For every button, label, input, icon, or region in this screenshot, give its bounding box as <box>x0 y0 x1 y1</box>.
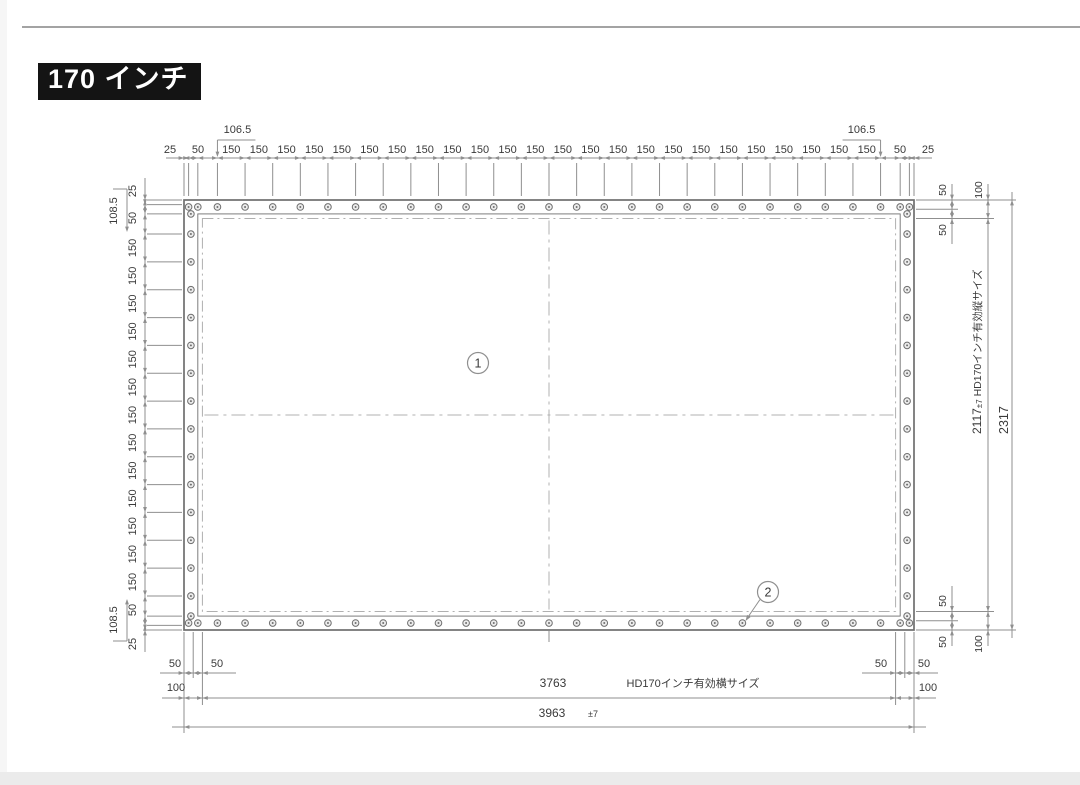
svg-text:100: 100 <box>919 682 937 694</box>
bottom-dimensions: 505050501001003763HD170インチ有効横サイズ3963±7 <box>160 632 938 733</box>
svg-text:150: 150 <box>554 144 572 156</box>
svg-text:150: 150 <box>609 144 627 156</box>
svg-text:150: 150 <box>802 144 820 156</box>
svg-text:25: 25 <box>127 638 139 650</box>
svg-text:150: 150 <box>127 545 139 563</box>
svg-text:150: 150 <box>388 144 406 156</box>
svg-text:150: 150 <box>127 434 139 452</box>
svg-text:150: 150 <box>719 144 737 156</box>
svg-text:150: 150 <box>775 144 793 156</box>
svg-text:150: 150 <box>127 322 139 340</box>
svg-text:50: 50 <box>937 595 949 607</box>
svg-text:150: 150 <box>415 144 433 156</box>
svg-text:3963: 3963 <box>539 706 566 720</box>
svg-text:150: 150 <box>858 144 876 156</box>
svg-text:2117±7 HD170インチ有効縦サイズ: 2117±7 HD170インチ有効縦サイズ <box>970 270 984 434</box>
svg-text:150: 150 <box>360 144 378 156</box>
svg-text:108.5: 108.5 <box>108 197 120 225</box>
svg-text:50: 50 <box>127 604 139 616</box>
svg-text:150: 150 <box>127 294 139 312</box>
svg-text:50: 50 <box>192 144 204 156</box>
svg-text:150: 150 <box>692 144 710 156</box>
svg-text:150: 150 <box>333 144 351 156</box>
svg-text:150: 150 <box>305 144 323 156</box>
svg-text:25: 25 <box>922 144 934 156</box>
svg-text:50: 50 <box>169 658 181 670</box>
svg-text:106.5: 106.5 <box>848 124 876 136</box>
top-dimension-chain: 2550150150150150150150150150150150150150… <box>164 124 934 196</box>
svg-text:2: 2 <box>765 586 772 600</box>
svg-text:150: 150 <box>127 461 139 479</box>
svg-text:150: 150 <box>664 144 682 156</box>
svg-text:106.5: 106.5 <box>224 124 252 136</box>
svg-text:100: 100 <box>167 682 185 694</box>
svg-text:150: 150 <box>747 144 765 156</box>
svg-text:108.5: 108.5 <box>108 606 120 634</box>
svg-text:150: 150 <box>830 144 848 156</box>
svg-text:50: 50 <box>211 658 223 670</box>
svg-text:50: 50 <box>127 212 139 224</box>
svg-text:100: 100 <box>973 181 985 199</box>
svg-text:150: 150 <box>471 144 489 156</box>
svg-text:HD170インチ有効横サイズ: HD170インチ有効横サイズ <box>627 676 760 690</box>
svg-text:25: 25 <box>127 185 139 197</box>
svg-text:150: 150 <box>250 144 268 156</box>
svg-text:50: 50 <box>937 636 949 648</box>
svg-text:150: 150 <box>581 144 599 156</box>
svg-text:150: 150 <box>222 144 240 156</box>
svg-text:150: 150 <box>127 239 139 257</box>
svg-text:50: 50 <box>937 184 949 196</box>
svg-text:100: 100 <box>973 635 985 653</box>
bottom-band <box>0 772 1080 785</box>
svg-text:150: 150 <box>637 144 655 156</box>
svg-text:150: 150 <box>277 144 295 156</box>
svg-text:150: 150 <box>127 489 139 507</box>
svg-text:25: 25 <box>164 144 176 156</box>
svg-text:50: 50 <box>875 658 887 670</box>
svg-text:150: 150 <box>127 378 139 396</box>
svg-text:150: 150 <box>127 517 139 535</box>
svg-text:150: 150 <box>127 573 139 591</box>
svg-text:150: 150 <box>526 144 544 156</box>
svg-text:150: 150 <box>127 406 139 424</box>
svg-text:3763: 3763 <box>540 676 567 690</box>
svg-text:1: 1 <box>475 357 482 371</box>
svg-text:150: 150 <box>127 350 139 368</box>
svg-text:±7: ±7 <box>588 709 598 719</box>
svg-text:150: 150 <box>127 267 139 285</box>
svg-text:150: 150 <box>443 144 461 156</box>
svg-text:50: 50 <box>937 224 949 236</box>
drawing-page: 170 インチ 25501501501501501501501501501501… <box>0 0 1080 785</box>
svg-text:50: 50 <box>918 658 930 670</box>
left-dimension-chain: 2550150150150150150150150150150150150150… <box>108 178 182 652</box>
svg-text:150: 150 <box>498 144 516 156</box>
right-dimensions: 505010050501002117±7 HD170インチ有効縦サイズ2317 <box>916 181 1016 653</box>
svg-text:2317: 2317 <box>997 406 1011 434</box>
technical-drawing: 2550150150150150150150150150150150150150… <box>0 0 1080 785</box>
svg-text:50: 50 <box>894 144 906 156</box>
